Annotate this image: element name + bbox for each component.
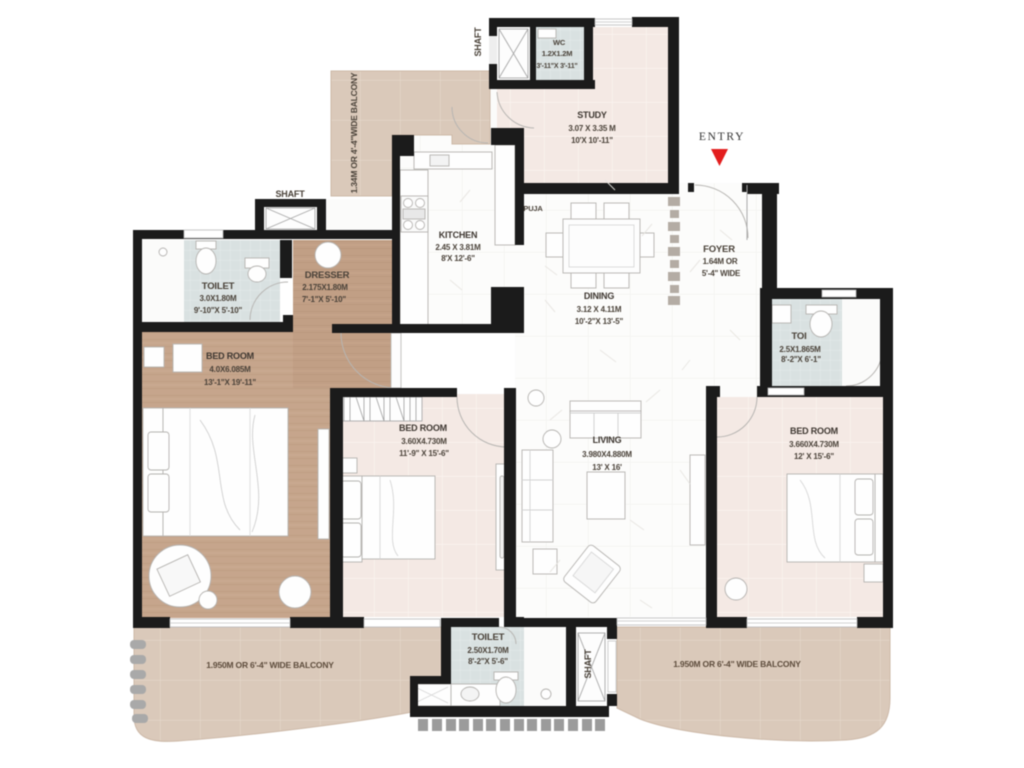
svg-text:SHAFT: SHAFT	[473, 27, 483, 57]
svg-text:4.0X6.085M: 4.0X6.085M	[209, 365, 251, 374]
svg-text:STUDY: STUDY	[577, 110, 607, 120]
svg-text:2.45 X 3.81M: 2.45 X 3.81M	[435, 243, 481, 252]
svg-text:5'-4" WIDE: 5'-4" WIDE	[702, 269, 741, 278]
svg-text:8'-2"X 6'-1": 8'-2"X 6'-1"	[781, 355, 821, 364]
svg-text:3.07 X 3.35 M: 3.07 X 3.35 M	[568, 124, 616, 133]
svg-text:9'-10"X 5'-10": 9'-10"X 5'-10"	[194, 306, 243, 315]
svg-text:3.660X4.730M: 3.660X4.730M	[789, 440, 839, 449]
svg-text:3'-11"X 3'-11": 3'-11"X 3'-11"	[536, 63, 577, 70]
svg-text:DINING: DINING	[584, 291, 614, 301]
svg-text:KITCHEN: KITCHEN	[439, 230, 478, 240]
svg-text:3.980X4.880M: 3.980X4.880M	[582, 450, 632, 459]
svg-text:8'-2"X 5'-6": 8'-2"X 5'-6"	[468, 657, 508, 666]
svg-text:LIVING: LIVING	[593, 435, 622, 445]
svg-text:1.950M OR 6'-4" WIDE BALCONY: 1.950M OR 6'-4" WIDE BALCONY	[673, 659, 801, 669]
svg-text:3.12 X 4.11M: 3.12 X 4.11M	[577, 305, 622, 314]
svg-text:BED ROOM: BED ROOM	[399, 423, 447, 433]
svg-text:BED ROOM: BED ROOM	[206, 351, 254, 361]
svg-text:SHAFT: SHAFT	[276, 189, 306, 199]
svg-text:2.175X1.80M: 2.175X1.80M	[302, 283, 348, 292]
svg-text:1.950M OR 6'-4" WIDE BALCONY: 1.950M OR 6'-4" WIDE BALCONY	[206, 660, 334, 670]
svg-text:1.64M OR: 1.64M OR	[703, 257, 738, 266]
svg-text:TOI: TOI	[791, 331, 806, 342]
svg-text:11'-9" X 15'-6": 11'-9" X 15'-6"	[399, 449, 449, 458]
svg-text:ENTRY: ENTRY	[699, 131, 745, 143]
svg-text:2.5X1.865M: 2.5X1.865M	[779, 345, 821, 354]
svg-text:1.2X1.2M: 1.2X1.2M	[542, 49, 573, 58]
svg-text:PUJA: PUJA	[523, 204, 543, 213]
svg-text:1.34M OR 4'-4"WIDE BALCONY: 1.34M OR 4'-4"WIDE BALCONY	[349, 72, 359, 193]
svg-text:12' X 15'-6": 12' X 15'-6"	[794, 452, 834, 461]
svg-text:TOILET: TOILET	[472, 632, 505, 643]
svg-text:10'-2"X 13'-5": 10'-2"X 13'-5"	[575, 317, 624, 326]
svg-text:BED ROOM: BED ROOM	[790, 426, 838, 436]
svg-text:7'-1"X 5'-10": 7'-1"X 5'-10"	[302, 295, 346, 304]
svg-text:FOYER: FOYER	[703, 244, 735, 255]
svg-text:TOILET: TOILET	[202, 281, 235, 292]
svg-text:2.50X1.70M: 2.50X1.70M	[467, 646, 509, 655]
svg-text:10'X 10'-11": 10'X 10'-11"	[571, 136, 613, 145]
svg-text:DRESSER: DRESSER	[305, 270, 350, 281]
svg-text:SHAFT: SHAFT	[583, 649, 593, 679]
svg-text:8'X 12'-6": 8'X 12'-6"	[441, 254, 475, 263]
svg-text:3.0X1.80M: 3.0X1.80M	[200, 294, 237, 303]
svg-text:3.60X4.730M: 3.60X4.730M	[401, 437, 447, 446]
svg-text:13'-1"X 19'-11": 13'-1"X 19'-11"	[204, 378, 256, 387]
svg-text:13' X 16': 13' X 16'	[592, 463, 622, 472]
svg-text:WC: WC	[553, 38, 566, 47]
